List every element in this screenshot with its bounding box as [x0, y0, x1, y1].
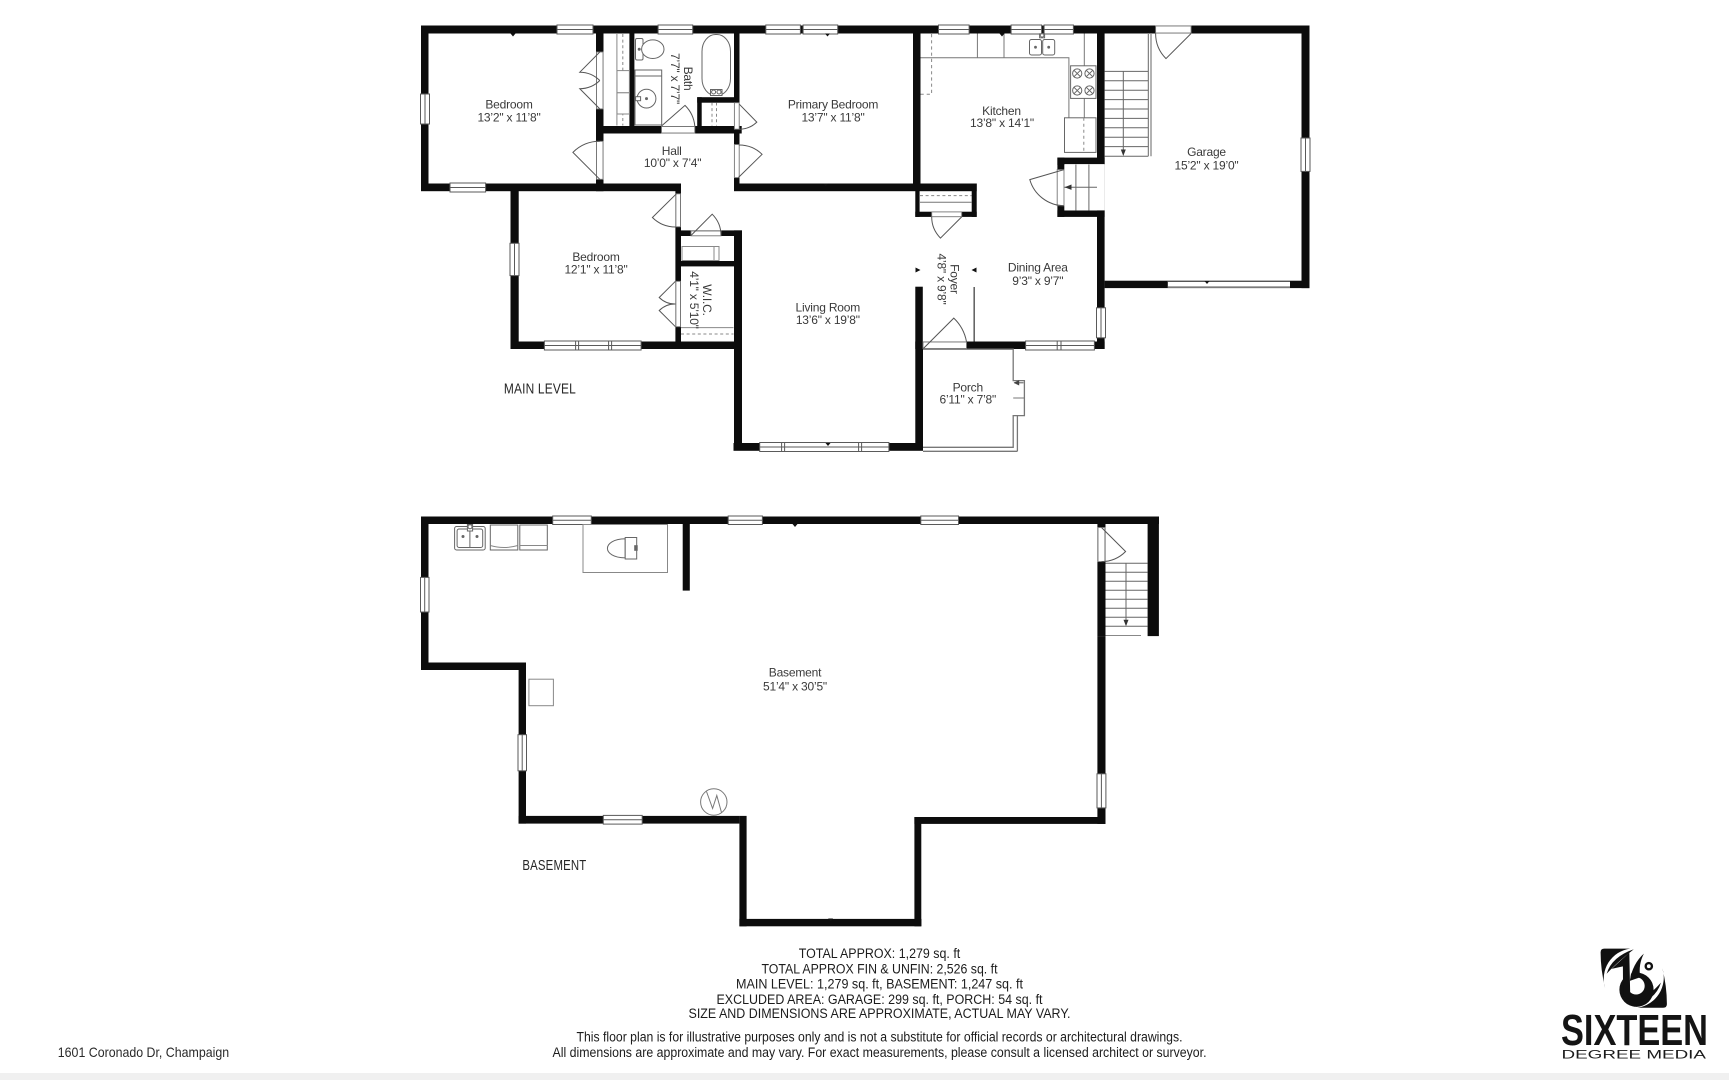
svg-text:DEGREE MEDIA: DEGREE MEDIA	[1562, 1050, 1707, 1062]
svg-text:SIZE AND DIMENSIONS ARE APPROX: SIZE AND DIMENSIONS ARE APPROXIMATE, ACT…	[689, 1006, 1071, 1021]
svg-text:EXCLUDED AREA: GARAGE: 299 sq.: EXCLUDED AREA: GARAGE: 299 sq. ft, PORCH…	[717, 992, 1043, 1007]
svg-text:Dining Area: Dining Area	[1008, 261, 1068, 275]
svg-text:W.I.C.: W.I.C.	[700, 284, 714, 315]
svg-text:Basement: Basement	[769, 666, 822, 680]
svg-text:1601 Coronado Dr, Champaign: 1601 Coronado Dr, Champaign	[58, 1044, 229, 1060]
svg-text:4’1" x 5’10": 4’1" x 5’10"	[687, 271, 701, 329]
svg-text:13’8" x 14’1": 13’8" x 14’1"	[970, 116, 1034, 130]
svg-text:13’2" x 11’8": 13’2" x 11’8"	[477, 111, 540, 125]
svg-text:Bedroom: Bedroom	[485, 97, 532, 111]
svg-text:TOTAL APPROX: 1,279 sq. ft: TOTAL APPROX: 1,279 sq. ft	[799, 946, 961, 961]
svg-text:15’2" x 19’0": 15’2" x 19’0"	[1175, 158, 1239, 172]
svg-text:Foyer: Foyer	[948, 264, 962, 294]
svg-text:12’1" x 11’8": 12’1" x 11’8"	[564, 262, 627, 276]
svg-text:MAIN LEVEL: MAIN LEVEL	[504, 382, 576, 398]
svg-text:This floor plan is for illustr: This floor plan is for illustrative purp…	[577, 1030, 1183, 1045]
svg-text:Bath: Bath	[681, 67, 695, 91]
svg-text:6’11" x 7’8": 6’11" x 7’8"	[939, 392, 996, 406]
svg-text:13’7" x 11’8": 13’7" x 11’8"	[801, 111, 864, 125]
svg-text:Garage: Garage	[1187, 145, 1226, 159]
svg-text:51’4" x 30’5": 51’4" x 30’5"	[763, 680, 827, 694]
svg-text:Primary Bedroom: Primary Bedroom	[788, 97, 879, 111]
svg-text:BASEMENT: BASEMENT	[522, 858, 586, 874]
svg-text:7’7" x 7’7": 7’7" x 7’7"	[668, 53, 682, 104]
svg-text:All dimensions are approximate: All dimensions are approximate and may v…	[553, 1045, 1207, 1060]
svg-text:MAIN LEVEL: 1,279 sq. ft, BASE: MAIN LEVEL: 1,279 sq. ft, BASEMENT: 1,24…	[736, 977, 1023, 992]
svg-text:13’6" x 19’8": 13’6" x 19’8"	[796, 313, 860, 327]
svg-text:TOTAL APPROX FIN & UNFIN: 2,52: TOTAL APPROX FIN & UNFIN: 2,526 sq. ft	[762, 961, 998, 976]
svg-text:4’8" x 9’8": 4’8" x 9’8"	[935, 253, 949, 304]
svg-text:10’0" x 7’4": 10’0" x 7’4"	[644, 156, 702, 170]
svg-text:SIXTEEN: SIXTEEN	[1561, 1006, 1708, 1055]
svg-text:9’3" x 9’7": 9’3" x 9’7"	[1012, 274, 1063, 288]
